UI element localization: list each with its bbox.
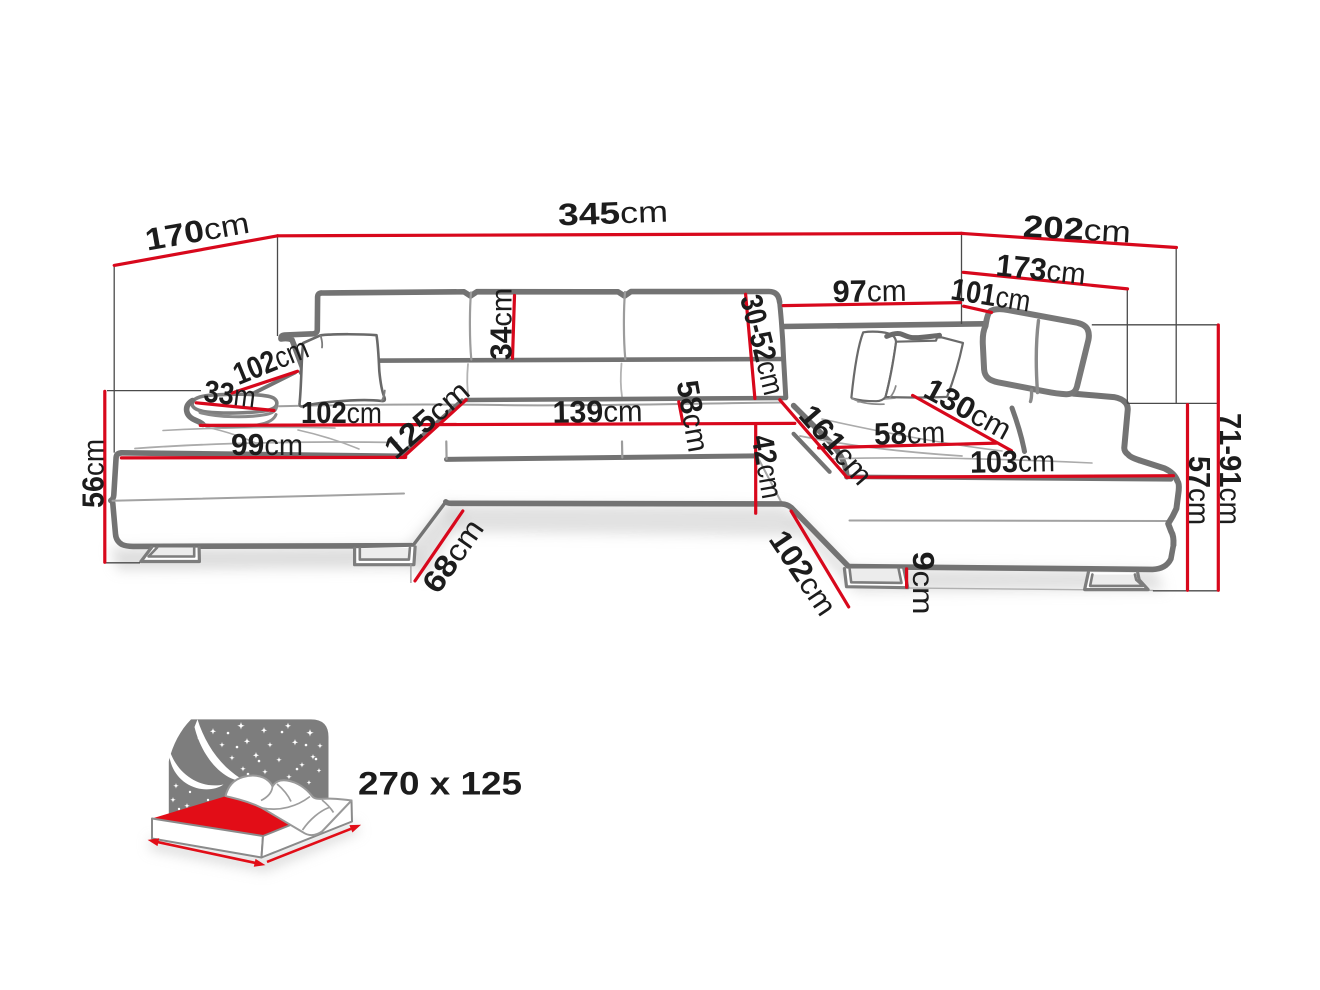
svg-text:71-91cm: 71-91cm (1213, 413, 1248, 525)
svg-text:57cm: 57cm (1182, 456, 1217, 525)
svg-text:202cm: 202cm (1022, 209, 1132, 250)
svg-text:270 x 125: 270 x 125 (358, 766, 522, 802)
svg-text:102cm: 102cm (301, 395, 382, 430)
svg-text:99cm: 99cm (231, 427, 303, 462)
svg-text:34cm: 34cm (484, 288, 519, 360)
svg-text:125cm: 125cm (377, 373, 476, 466)
svg-text:9cm: 9cm (906, 552, 941, 615)
svg-text:102cm: 102cm (762, 524, 844, 622)
svg-text:42cm: 42cm (745, 432, 791, 501)
svg-text:56cm: 56cm (76, 439, 111, 508)
svg-text:345cm: 345cm (557, 194, 668, 233)
svg-text:103cm: 103cm (970, 443, 1056, 479)
svg-text:139cm: 139cm (552, 393, 643, 430)
svg-text:97cm: 97cm (832, 273, 907, 309)
svg-text:58cm: 58cm (670, 378, 717, 455)
svg-text:58cm: 58cm (873, 414, 945, 451)
